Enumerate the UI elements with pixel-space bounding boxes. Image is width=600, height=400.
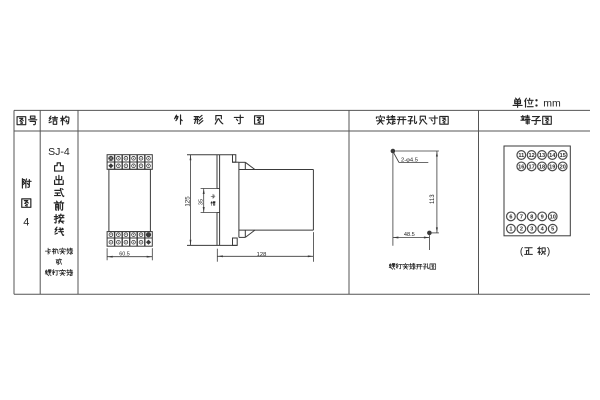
svg-text:11: 11 bbox=[518, 153, 524, 159]
svg-text:14: 14 bbox=[549, 153, 556, 159]
svg-text:35: 35 bbox=[198, 199, 204, 205]
svg-text:2-φ4.5: 2-φ4.5 bbox=[401, 158, 418, 164]
svg-text:mm: mm bbox=[543, 97, 561, 109]
svg-text:125: 125 bbox=[184, 196, 191, 207]
svg-text:SJ-4: SJ-4 bbox=[48, 146, 70, 158]
svg-text:16: 16 bbox=[518, 164, 524, 170]
svg-text:19: 19 bbox=[549, 164, 555, 170]
svg-text:48.5: 48.5 bbox=[404, 232, 415, 238]
svg-text:7: 7 bbox=[520, 214, 523, 220]
svg-text:15: 15 bbox=[560, 153, 566, 159]
svg-text:3: 3 bbox=[530, 227, 533, 233]
svg-text:1: 1 bbox=[509, 227, 512, 233]
svg-text:4: 4 bbox=[23, 216, 29, 228]
svg-text:): ) bbox=[547, 247, 550, 258]
svg-text:12: 12 bbox=[528, 153, 534, 159]
svg-text:6: 6 bbox=[509, 214, 512, 220]
svg-text:2: 2 bbox=[520, 227, 523, 233]
svg-text:17: 17 bbox=[528, 164, 534, 170]
svg-text:18: 18 bbox=[539, 164, 545, 170]
svg-text:13: 13 bbox=[539, 153, 545, 159]
svg-text:113: 113 bbox=[430, 194, 436, 204]
svg-text:9: 9 bbox=[541, 214, 544, 220]
svg-text:5: 5 bbox=[551, 227, 554, 233]
svg-text:128: 128 bbox=[257, 252, 267, 258]
svg-text:20: 20 bbox=[560, 164, 566, 170]
svg-text:8: 8 bbox=[530, 214, 533, 220]
svg-text:60.5: 60.5 bbox=[119, 251, 130, 257]
svg-text:10: 10 bbox=[550, 214, 556, 220]
